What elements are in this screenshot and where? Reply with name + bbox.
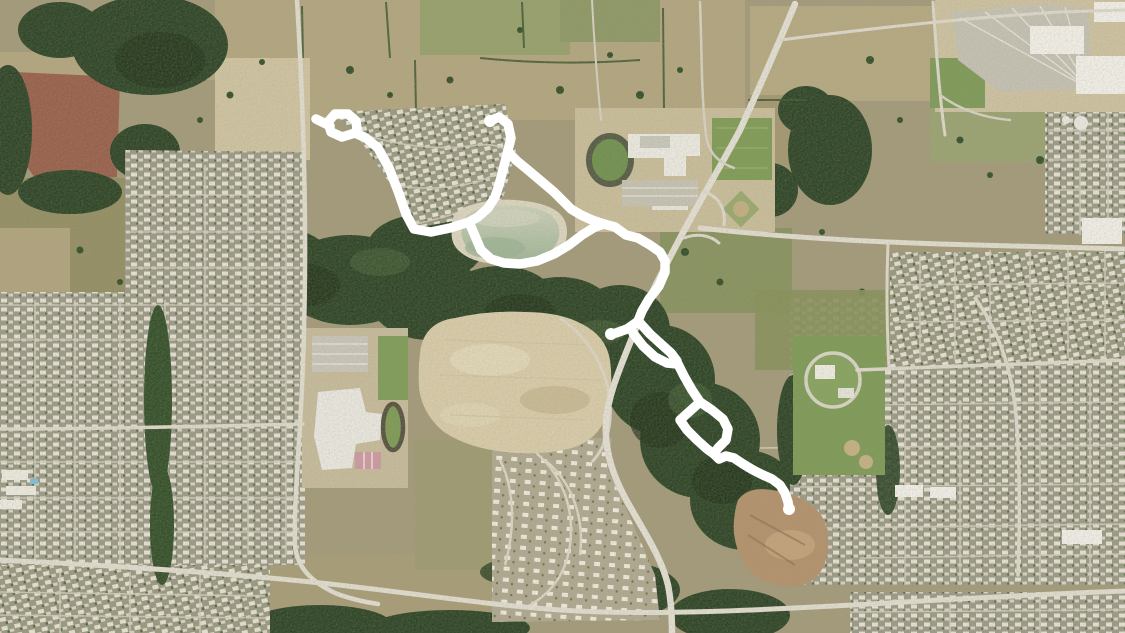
route-endpoint	[484, 115, 496, 127]
route-endpoint	[783, 503, 795, 515]
photo-grain	[0, 0, 1125, 633]
route-endpoint	[605, 328, 617, 340]
satellite-map-canvas	[0, 0, 1125, 633]
satellite-map[interactable]	[0, 0, 1125, 633]
gps-route-segment	[316, 119, 330, 126]
